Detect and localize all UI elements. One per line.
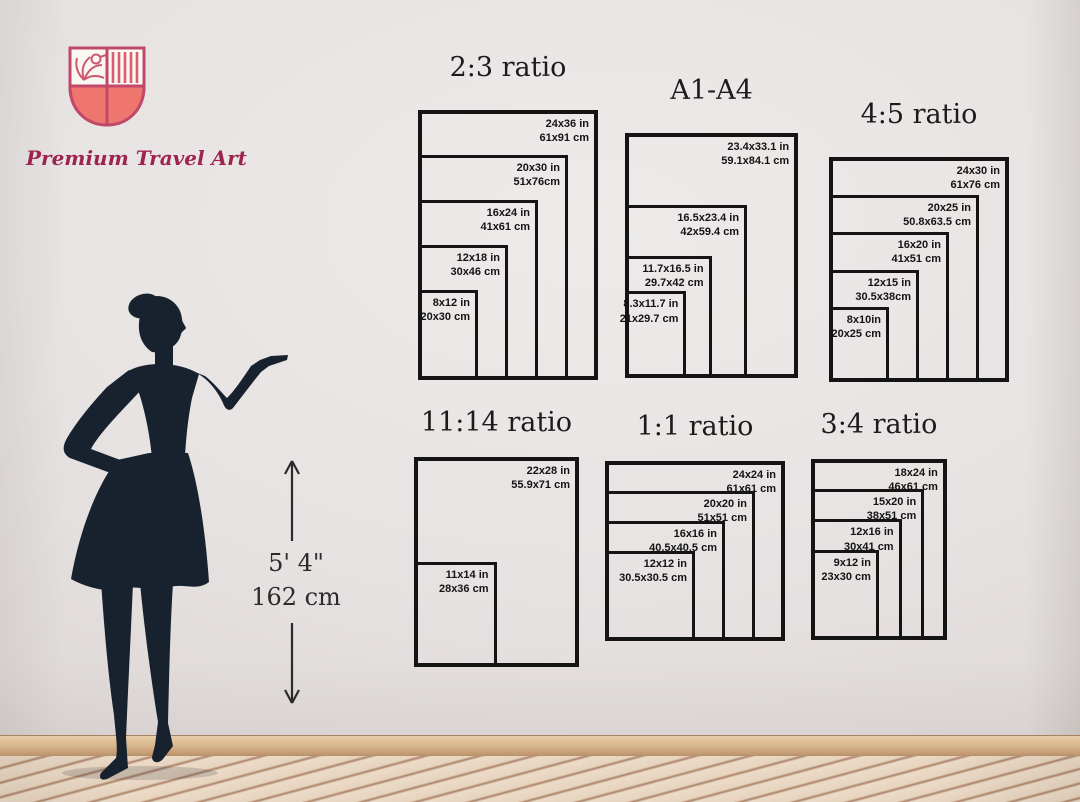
height-cm-label: 162 cm: [236, 583, 356, 611]
chart-box: 18x24 in46x61 cm15x20 in38x51 cm12x16 in…: [811, 459, 947, 640]
size-rect-8x12in: 8x12 in20x30 cm: [418, 290, 478, 380]
size-inches: 15x20 in: [867, 495, 917, 509]
size-inches: 20x20 in: [697, 497, 747, 511]
size-label: 8x10in20x25 cm: [831, 313, 881, 342]
size-inches: 8x10in: [831, 313, 881, 327]
chart-box: 23.4x33.1 in59.1x84.1 cm16.5x23.4 in42x5…: [625, 133, 798, 378]
size-label: 16x20 in41x51 cm: [891, 238, 941, 267]
size-rect-8.3x11.7in: 8.3x11.7 in21x29.7 cm: [625, 291, 686, 378]
size-inches: 20x30 in: [514, 161, 561, 175]
arrow-down-icon: [285, 623, 299, 703]
size-inches: 20x25 in: [903, 201, 971, 215]
size-inches: 23.4x33.1 in: [721, 140, 789, 154]
size-cm: 42x59.4 cm: [677, 225, 739, 239]
size-inches: 24x36 in: [539, 117, 589, 131]
chart-title: 3:4 ratio: [821, 409, 938, 440]
size-label: 20x30 in51x76cm: [514, 161, 561, 190]
size-cm: 61x91 cm: [539, 131, 589, 145]
size-label: 11x14 in28x36 cm: [439, 568, 489, 597]
size-inches: 16x20 in: [891, 238, 941, 252]
size-label: 9x12 in23x30 cm: [821, 556, 871, 585]
size-cm: 61x76 cm: [950, 178, 1000, 192]
size-chart-a1-a4: A1-A4 23.4x33.1 in59.1x84.1 cm16.5x23.4 …: [625, 133, 798, 378]
size-chart-4-5-ratio: 4:5 ratio 24x30 in61x76 cm20x25 in50.8x6…: [829, 157, 1009, 382]
size-cm: 55.9x71 cm: [511, 478, 570, 492]
chart-title: 2:3 ratio: [450, 52, 567, 83]
size-cm: 41x61 cm: [480, 220, 530, 234]
size-inches: 16.5x23.4 in: [677, 211, 739, 225]
chart-title: 1:1 ratio: [637, 411, 754, 442]
size-label: 22x28 in55.9x71 cm: [511, 464, 570, 493]
size-cm: 28x36 cm: [439, 582, 489, 596]
woman-silhouette: [55, 290, 290, 782]
size-inches: 12x18 in: [450, 251, 500, 265]
figure-shadow: [62, 766, 218, 780]
chart-box: 24x24 in61x61 cm20x20 in51x51 cm16x16 in…: [605, 461, 785, 641]
chart-box: 24x36 in61x91 cm20x30 in51x76cm16x24 in4…: [418, 110, 598, 380]
size-label: 23.4x33.1 in59.1x84.1 cm: [721, 140, 789, 169]
size-rect-8x10in: 8x10in20x25 cm: [829, 307, 889, 382]
size-cm: 41x51 cm: [891, 252, 941, 266]
size-inches: 12x12 in: [619, 557, 687, 571]
size-cm: 20x30 cm: [420, 310, 470, 324]
size-chart-3-4-ratio: 3:4 ratio 18x24 in46x61 cm15x20 in38x51 …: [811, 459, 947, 640]
height-feet-label: 5' 4": [236, 549, 356, 577]
chart-title: 11:14 ratio: [421, 407, 572, 438]
size-cm: 30x46 cm: [450, 265, 500, 279]
size-inches: 24x30 in: [950, 164, 1000, 178]
chart-box: 22x28 in55.9x71 cm11x14 in28x36 cm: [414, 457, 579, 667]
chart-title: 4:5 ratio: [861, 99, 978, 130]
size-inches: 12x15 in: [855, 276, 911, 290]
size-inches: 16x24 in: [480, 206, 530, 220]
size-label: 11.7x16.5 in29.7x42 cm: [642, 262, 703, 291]
size-inches: 11.7x16.5 in: [642, 262, 703, 276]
size-inches: 12x16 in: [844, 525, 894, 539]
size-cm: 51x76cm: [514, 175, 561, 189]
size-cm: 29.7x42 cm: [642, 276, 703, 290]
size-rect-12x12in: 12x12 in30.5x30.5 cm: [605, 551, 695, 641]
size-inches: 8.3x11.7 in: [620, 297, 679, 311]
size-label: 12x15 in30.5x38cm: [855, 276, 911, 305]
size-cm: 30.5x30.5 cm: [619, 571, 687, 585]
chart-title: A1-A4: [670, 75, 752, 106]
size-label: 8.3x11.7 in21x29.7 cm: [620, 297, 679, 326]
size-label: 16.5x23.4 in42x59.4 cm: [677, 211, 739, 240]
brand-name: Premium Travel Art: [26, 146, 216, 170]
size-chart-1-1-ratio: 1:1 ratio 24x24 in61x61 cm20x20 in51x51 …: [605, 461, 785, 641]
size-cm: 30.5x38cm: [855, 290, 911, 304]
size-label: 8x12 in20x30 cm: [420, 296, 470, 325]
size-label: 20x25 in50.8x63.5 cm: [903, 201, 971, 230]
size-label: 16x24 in41x61 cm: [480, 206, 530, 235]
size-rect-9x12in: 9x12 in23x30 cm: [811, 550, 879, 641]
arrow-up-icon: [285, 461, 299, 541]
size-cm: 23x30 cm: [821, 570, 871, 584]
size-inches: 24x24 in: [726, 468, 776, 482]
size-cm: 50.8x63.5 cm: [903, 215, 971, 229]
size-label: 12x12 in30.5x30.5 cm: [619, 557, 687, 586]
size-label: 24x36 in61x91 cm: [539, 117, 589, 146]
size-chart-11-14-ratio: 11:14 ratio 22x28 in55.9x71 cm11x14 in28…: [414, 457, 579, 667]
size-cm: 21x29.7 cm: [620, 312, 679, 326]
size-label: 12x18 in30x46 cm: [450, 251, 500, 280]
size-inches: 16x16 in: [649, 527, 717, 541]
size-inches: 9x12 in: [821, 556, 871, 570]
size-label: 24x30 in61x76 cm: [950, 164, 1000, 193]
size-cm: 20x25 cm: [831, 327, 881, 341]
chart-box: 24x30 in61x76 cm20x25 in50.8x63.5 cm16x2…: [829, 157, 1009, 382]
size-inches: 22x28 in: [511, 464, 570, 478]
size-cm: 59.1x84.1 cm: [721, 154, 789, 168]
size-inches: 18x24 in: [888, 466, 938, 480]
size-rect-11x14in: 11x14 in28x36 cm: [414, 562, 497, 667]
size-inches: 11x14 in: [439, 568, 489, 582]
shield-crest-icon: [63, 44, 151, 130]
size-inches: 8x12 in: [420, 296, 470, 310]
size-chart-2-3-ratio: 2:3 ratio 24x36 in61x91 cm20x30 in51x76c…: [418, 110, 598, 380]
